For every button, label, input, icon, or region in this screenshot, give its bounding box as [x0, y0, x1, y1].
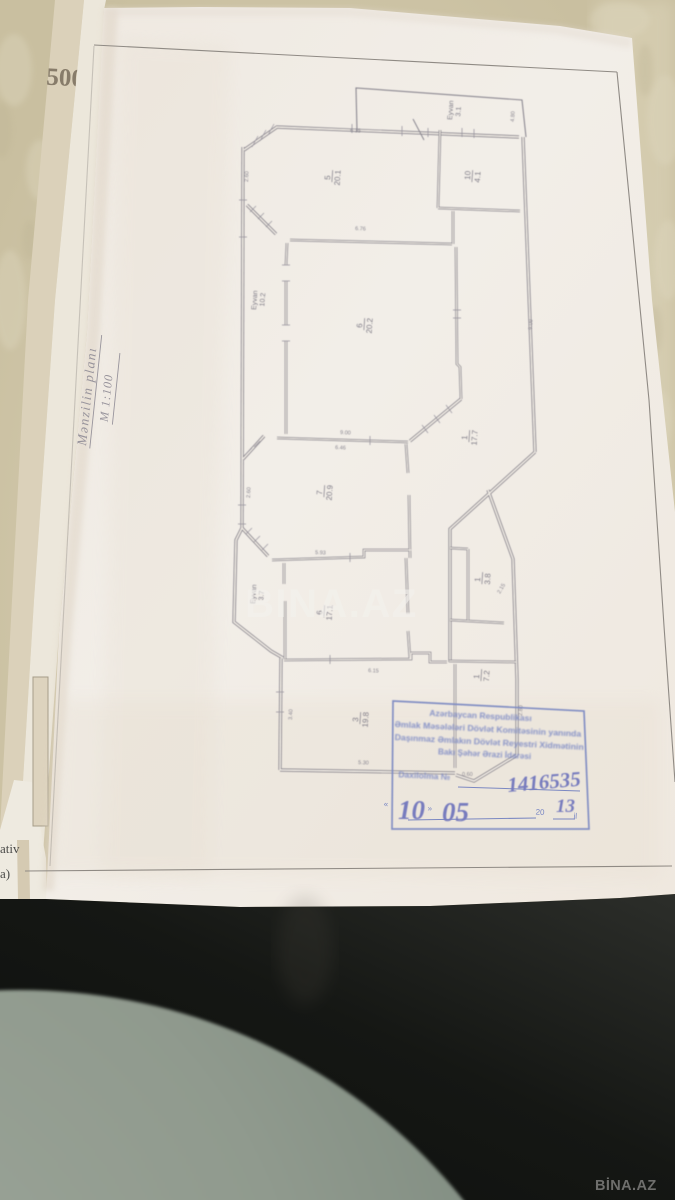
svg-text:5.93: 5.93 [315, 550, 326, 557]
svg-text:4.1: 4.1 [473, 171, 483, 183]
svg-text:Eyvan: Eyvan [447, 100, 455, 120]
svg-text:17.7: 17.7 [470, 429, 480, 446]
svg-text:13: 13 [556, 796, 575, 817]
svg-text:05: 05 [442, 797, 469, 827]
svg-text:10: 10 [398, 795, 426, 825]
svg-text:6.76: 6.76 [355, 226, 366, 233]
svg-text:20.9: 20.9 [325, 484, 335, 501]
svg-text:20: 20 [535, 808, 545, 817]
svg-text:7.2: 7.2 [482, 670, 492, 682]
svg-text:a): a) [0, 866, 10, 881]
svg-text:BINA.AZ: BINA.AZ [245, 582, 418, 626]
svg-text:0.60: 0.60 [462, 772, 473, 778]
svg-text:2.60: 2.60 [244, 171, 251, 182]
svg-text:9.09: 9.09 [528, 319, 535, 330]
svg-text:19.8: 19.8 [361, 711, 371, 728]
svg-text:20.2: 20.2 [365, 317, 375, 334]
svg-text:20.1: 20.1 [333, 169, 343, 186]
svg-text:3.1: 3.1 [455, 106, 463, 116]
svg-text:6.15: 6.15 [350, 128, 361, 135]
svg-text:6.15: 6.15 [368, 668, 379, 675]
svg-text:4.80: 4.80 [510, 111, 517, 122]
svg-text:2.60: 2.60 [246, 487, 253, 498]
svg-text:Eyvan: Eyvan [251, 290, 259, 310]
svg-text:9.00: 9.00 [340, 430, 351, 437]
svg-text:5.30: 5.30 [358, 760, 369, 767]
svg-text:3.40: 3.40 [288, 709, 295, 720]
svg-text:6.46: 6.46 [335, 445, 346, 452]
svg-text:BİNA.AZ: BİNA.AZ [595, 1177, 657, 1194]
svg-text:10.2: 10.2 [259, 293, 267, 307]
svg-text:10: 10 [463, 170, 473, 180]
svg-text:ativ: ativ [0, 841, 20, 856]
svg-text:3.8: 3.8 [483, 573, 493, 585]
